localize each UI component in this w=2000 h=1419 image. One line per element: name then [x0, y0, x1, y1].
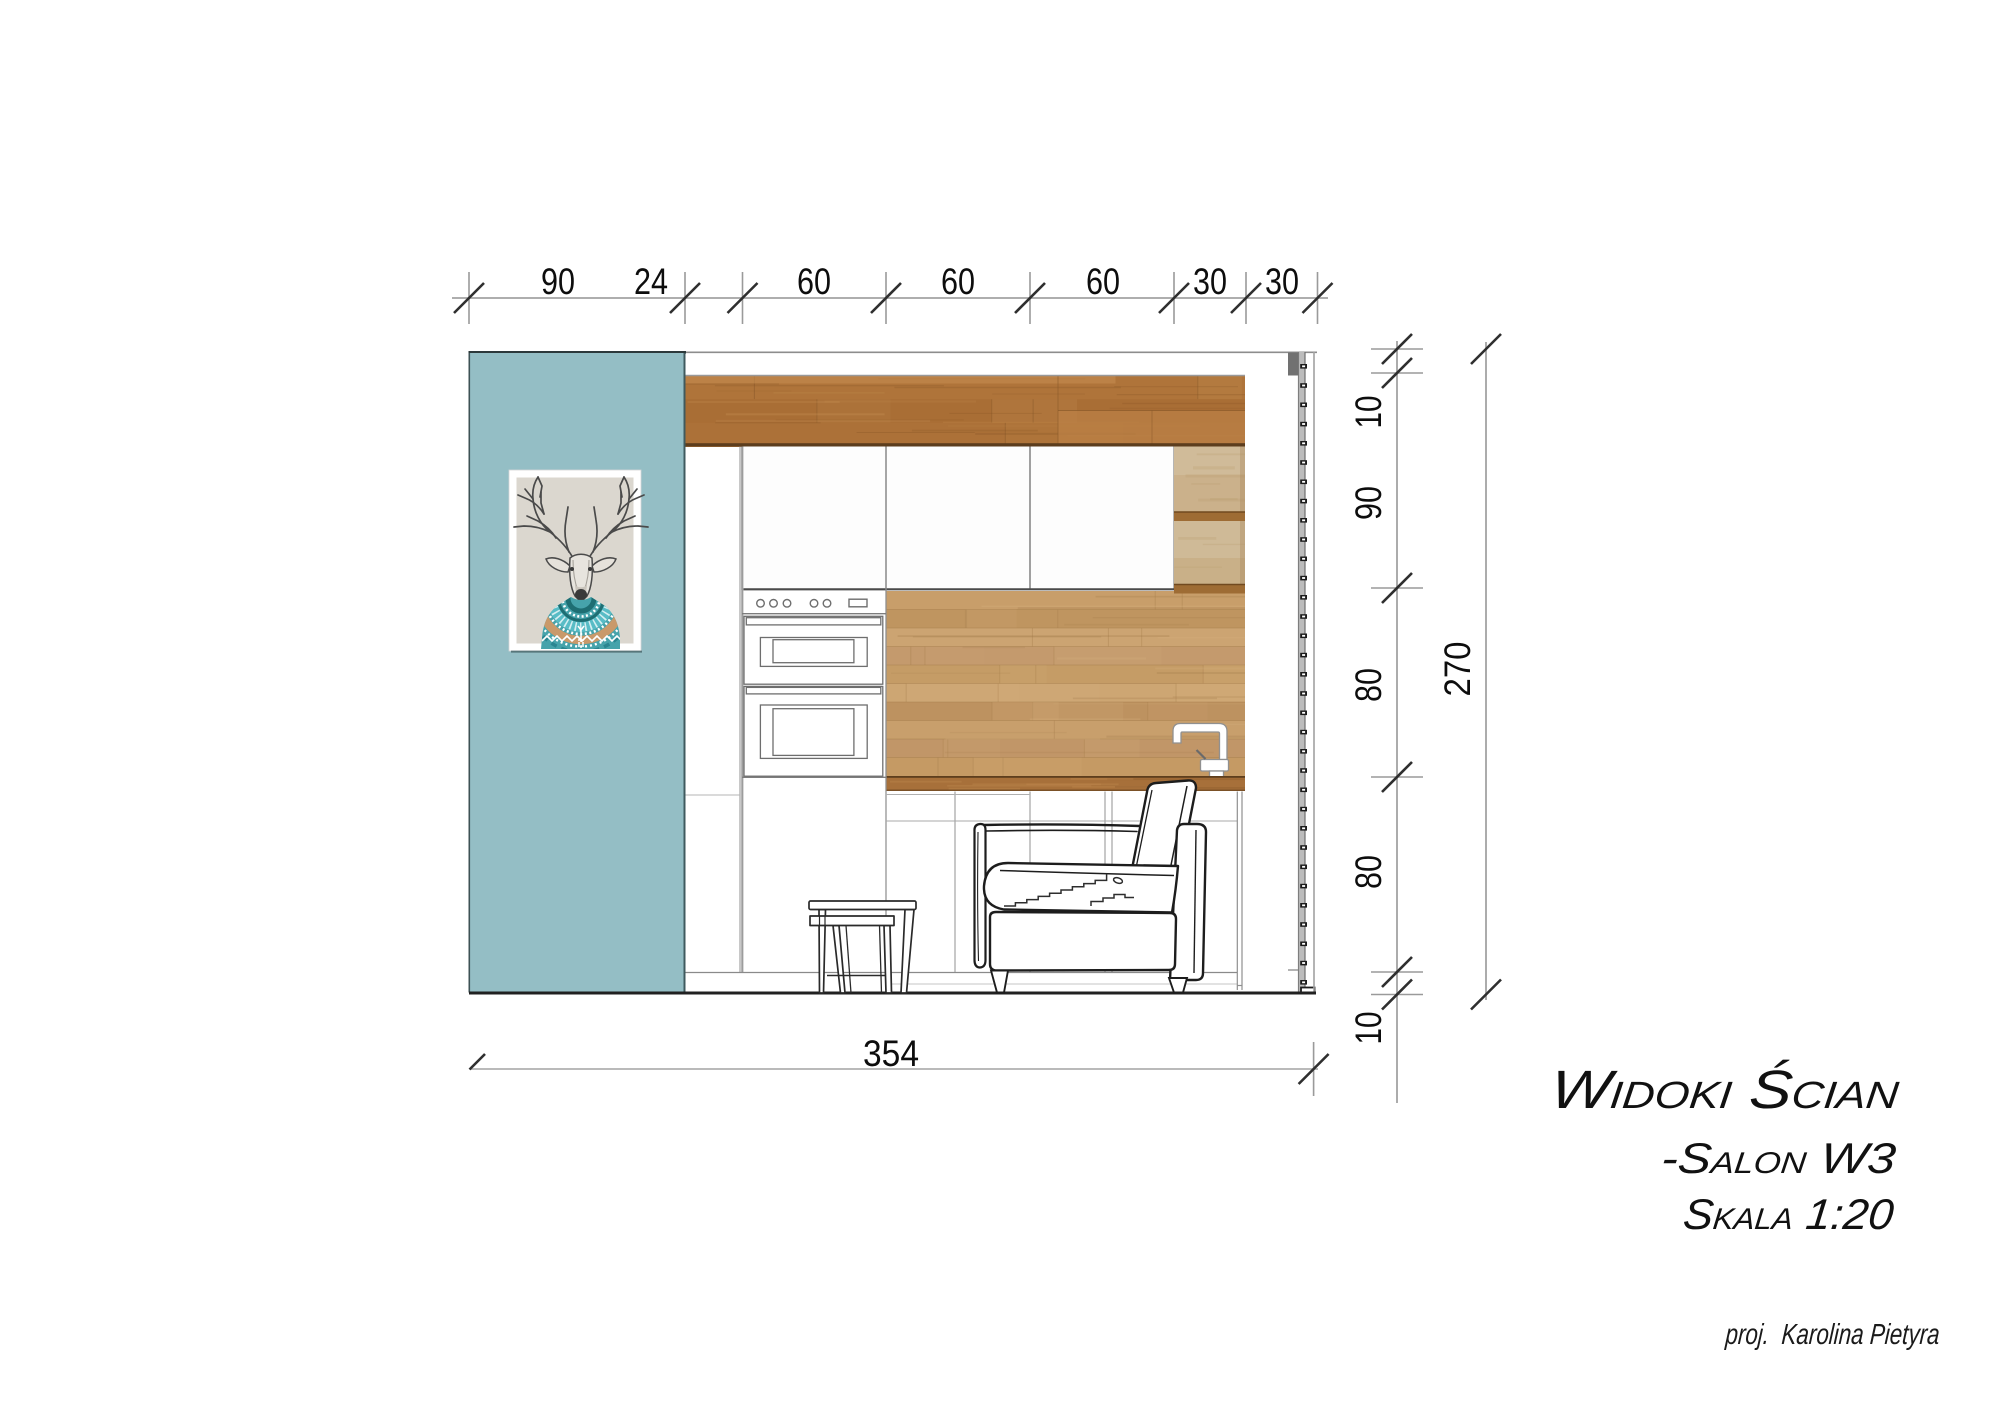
- svg-text:24: 24: [634, 261, 668, 302]
- svg-text:60: 60: [941, 261, 975, 302]
- svg-text:30: 30: [1193, 261, 1227, 302]
- svg-text:10: 10: [1348, 396, 1389, 429]
- svg-text:10: 10: [1348, 1012, 1389, 1045]
- svg-text:270: 270: [1437, 642, 1478, 697]
- svg-text:proj. Karolina Pietyra: proj. Karolina Pietyra: [1724, 1319, 1941, 1351]
- svg-text:60: 60: [1086, 261, 1120, 302]
- svg-text:30: 30: [1265, 261, 1299, 302]
- svg-text:354: 354: [863, 1033, 919, 1074]
- svg-text:-Salon W3: -Salon W3: [1659, 1135, 1898, 1183]
- svg-text:90: 90: [1348, 486, 1389, 520]
- svg-text:80: 80: [1348, 855, 1389, 889]
- svg-text:90: 90: [541, 261, 575, 302]
- svg-text:Widoki Ścian: Widoki Ścian: [1548, 1059, 1903, 1120]
- svg-text:60: 60: [797, 261, 831, 302]
- svg-text:80: 80: [1348, 668, 1389, 702]
- svg-text:Skala 1:20: Skala 1:20: [1681, 1191, 1896, 1239]
